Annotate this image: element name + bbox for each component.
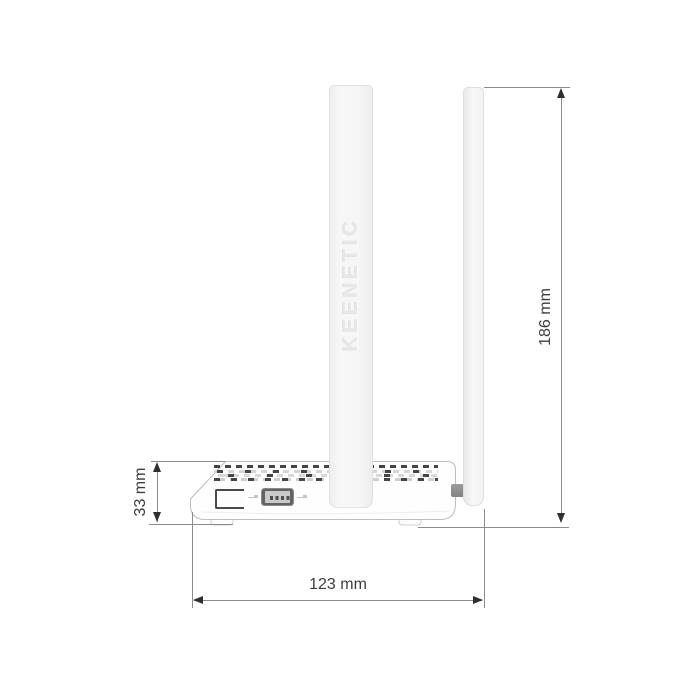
- dimension-label-total-height: 186 mm: [537, 288, 555, 346]
- arrow-down-icon: [153, 512, 161, 522]
- vent-grille-row: [214, 478, 438, 481]
- usb-icon: [297, 494, 307, 501]
- arrow-down-icon: [557, 513, 565, 523]
- dimension-line-body-width: [194, 600, 482, 601]
- extension-line-top: [151, 461, 225, 462]
- extension-line-left: [192, 512, 193, 608]
- usb-icon: [248, 494, 258, 501]
- arrow-left-icon: [193, 596, 203, 604]
- dimension-label-body-width: 123 mm: [309, 576, 367, 594]
- dimension-line-total-height: [561, 90, 562, 520]
- usb-port: [262, 489, 293, 505]
- arrow-up-icon: [153, 462, 161, 472]
- antenna-left: KEENETIC: [329, 85, 373, 508]
- dimension-label-body-height: 33 mm: [132, 468, 150, 517]
- antenna-right: [463, 87, 484, 506]
- vent-grille-row: [214, 470, 438, 473]
- extension-line-right: [484, 509, 485, 608]
- vent-grille-row: [214, 465, 438, 468]
- dimension-diagram: KEENETIC 186 mm 33 mm 123 mm: [0, 0, 700, 700]
- usb-port-inner: [265, 491, 290, 503]
- vent-grille-row: [214, 474, 438, 477]
- usb-port-pins: [270, 496, 291, 500]
- arrow-right-icon: [473, 596, 483, 604]
- fn-button-outline: [215, 489, 244, 509]
- arrow-up-icon: [557, 88, 565, 98]
- extension-line-bottom: [149, 524, 233, 525]
- extension-line-bottom: [418, 527, 569, 528]
- brand-emboss: KEENETIC: [339, 217, 363, 351]
